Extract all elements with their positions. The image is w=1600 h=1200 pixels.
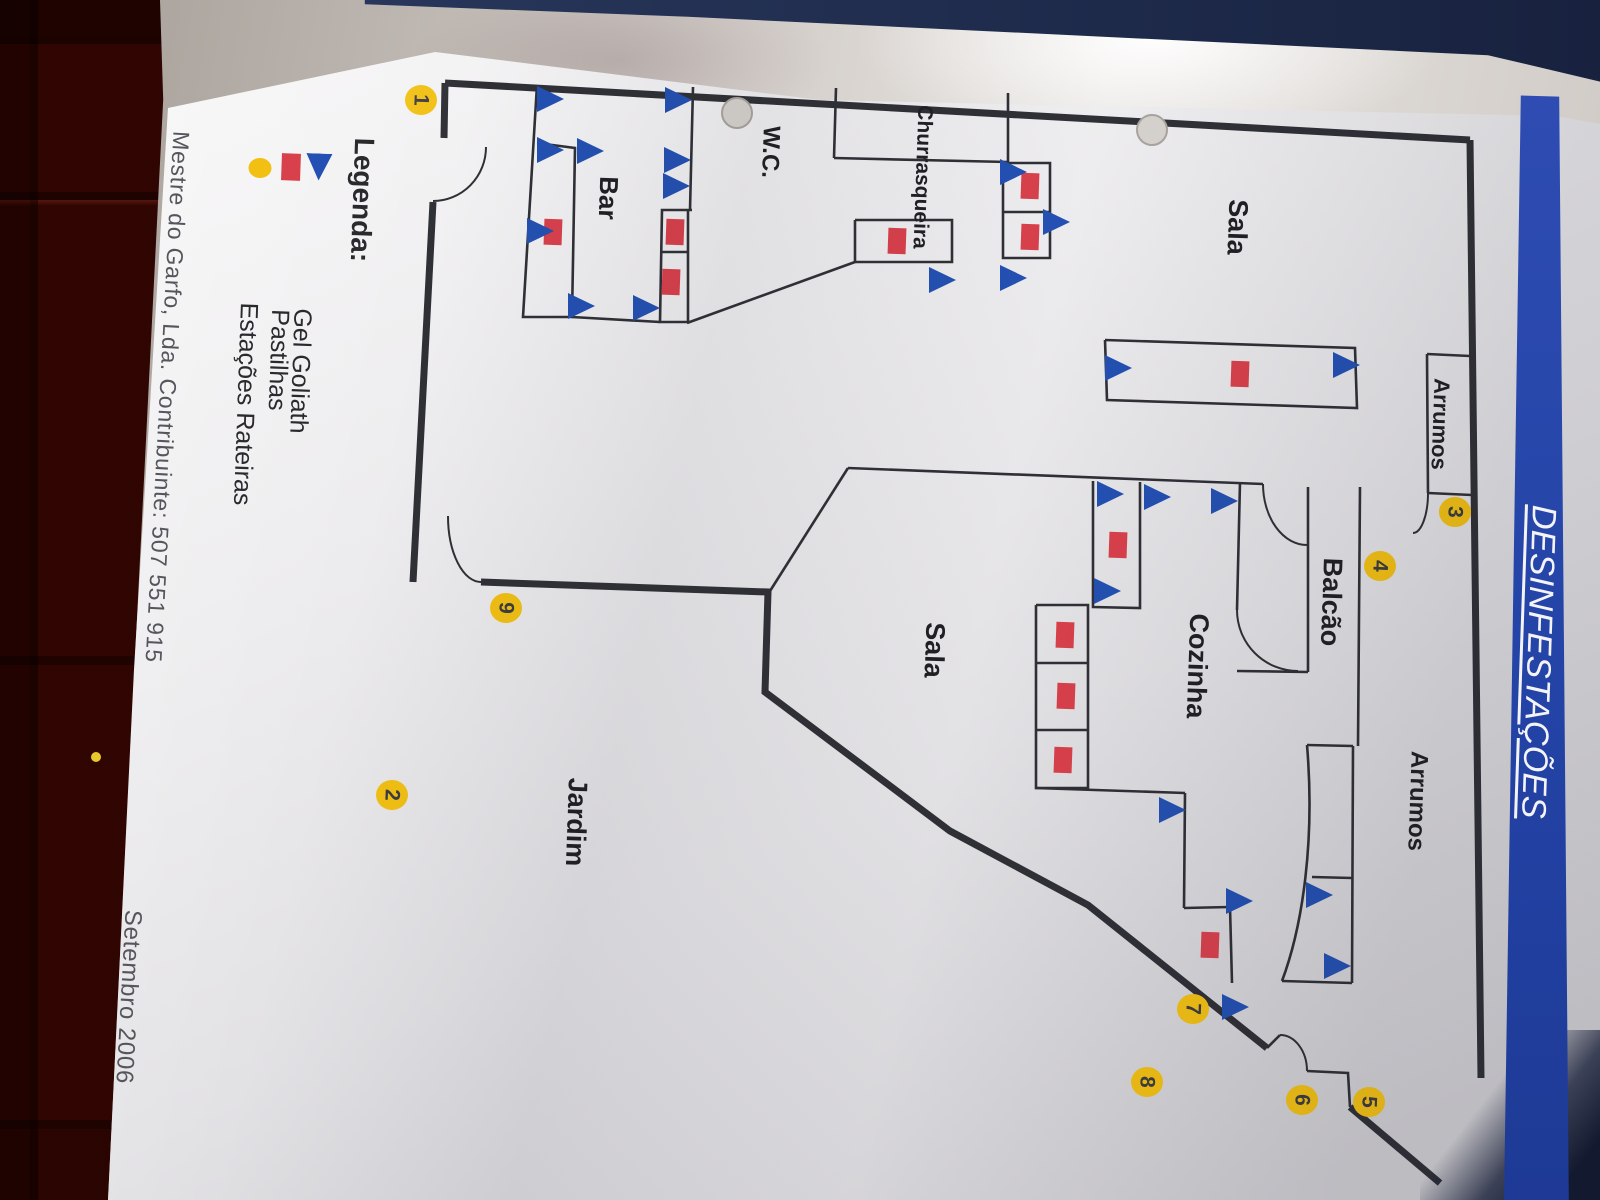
- door-arc: [1263, 484, 1307, 545]
- estacao-number: 3: [1443, 506, 1466, 518]
- wall-thin: [1267, 1035, 1280, 1048]
- wall-thick: [445, 83, 1470, 140]
- gel-goliath-marker: [1222, 994, 1249, 1020]
- gel-goliath-marker: [1226, 888, 1253, 914]
- gel-goliath-marker: [1097, 481, 1124, 507]
- pastilhas-marker: [662, 269, 681, 296]
- legend-pastilhas-square-icon: [281, 153, 301, 181]
- pastilhas-marker: [1201, 932, 1220, 959]
- door-arc: [448, 516, 481, 582]
- gel-goliath-marker: [1043, 209, 1070, 235]
- wall-thin: [1035, 788, 1185, 793]
- wall-thin: [1427, 354, 1428, 493]
- gel-goliath-marker: [568, 293, 595, 319]
- wall-thick: [444, 83, 445, 138]
- wall-thin: [1230, 907, 1232, 983]
- wall-thin: [1358, 487, 1360, 746]
- gel-goliath-marker: [664, 147, 691, 173]
- floor-speck: [91, 752, 101, 762]
- gel-goliath-marker: [1000, 265, 1027, 291]
- wall-thin: [1307, 745, 1353, 746]
- gel-goliath-marker: [1324, 953, 1351, 979]
- wall-thin: [834, 88, 836, 158]
- gel-goliath-marker: [1211, 488, 1238, 514]
- gel-goliath-marker: [1159, 797, 1186, 823]
- wall-thin: [1282, 981, 1352, 983]
- floor-plan-svg: 123456789: [0, 0, 1600, 1200]
- pastilhas-marker: [1021, 173, 1040, 200]
- wall-thin: [1428, 493, 1472, 495]
- door-arc: [433, 147, 486, 201]
- door-arc: [1413, 493, 1428, 533]
- gel-goliath-marker: [1306, 882, 1333, 908]
- photo-of-floor-plan-document: { "title": "DESINFESTAÇÕES", "legend": {…: [0, 0, 1600, 1200]
- pastilhas-marker: [888, 228, 907, 255]
- door-arc: [1280, 1035, 1307, 1071]
- gel-goliath-marker: [929, 267, 956, 293]
- wall-thin: [848, 468, 1263, 484]
- door-arc: [1237, 610, 1298, 671]
- punch-hole: [722, 98, 752, 128]
- legend-heading: Legenda:: [344, 137, 380, 263]
- wall-thin: [1352, 746, 1353, 983]
- pastilhas-marker: [1057, 683, 1076, 710]
- wall-thin: [1427, 354, 1470, 356]
- estacao-number: 5: [1357, 1096, 1380, 1109]
- wall-thin: [687, 262, 855, 323]
- estacao-number: 2: [380, 789, 403, 801]
- gel-goliath-marker: [1105, 355, 1132, 381]
- wall-thick: [1470, 140, 1481, 1078]
- gel-goliath-marker: [577, 138, 604, 164]
- estacao-number: 8: [1135, 1076, 1158, 1089]
- gel-goliath-marker: [665, 87, 692, 113]
- wall-thin: [1184, 907, 1230, 908]
- pastilhas-marker: [666, 219, 685, 246]
- wall-thin: [690, 87, 693, 210]
- wall-thin: [523, 85, 575, 317]
- estacao-number: 1: [409, 94, 432, 107]
- wall-thick: [481, 582, 1267, 1048]
- pastilhas-marker: [1054, 747, 1073, 774]
- pastilhas-marker: [1021, 224, 1040, 251]
- estacao-number: 7: [1181, 1003, 1204, 1015]
- pastilhas-marker: [1109, 532, 1128, 559]
- estacao-number: 4: [1368, 560, 1391, 573]
- pastilhas-marker: [1231, 361, 1250, 388]
- gel-goliath-marker: [537, 137, 564, 163]
- pastilhas-marker: [1056, 622, 1075, 649]
- wall-thin: [1282, 745, 1309, 981]
- punch-hole: [1137, 115, 1167, 145]
- legend-label-pastilhas: Pastilhas: [262, 309, 295, 411]
- wall-thin: [572, 317, 660, 322]
- gel-goliath-marker: [663, 173, 690, 199]
- wall-thick: [413, 202, 433, 582]
- gel-goliath-marker: [1094, 578, 1121, 604]
- gel-goliath-marker: [633, 295, 660, 321]
- wall-thin: [1312, 877, 1352, 878]
- estacao-number: 6: [1290, 1094, 1313, 1106]
- wall-thin: [770, 468, 848, 591]
- gel-goliath-marker: [1144, 484, 1171, 510]
- wall-thin: [834, 158, 1008, 162]
- estacao-number: 9: [494, 602, 517, 614]
